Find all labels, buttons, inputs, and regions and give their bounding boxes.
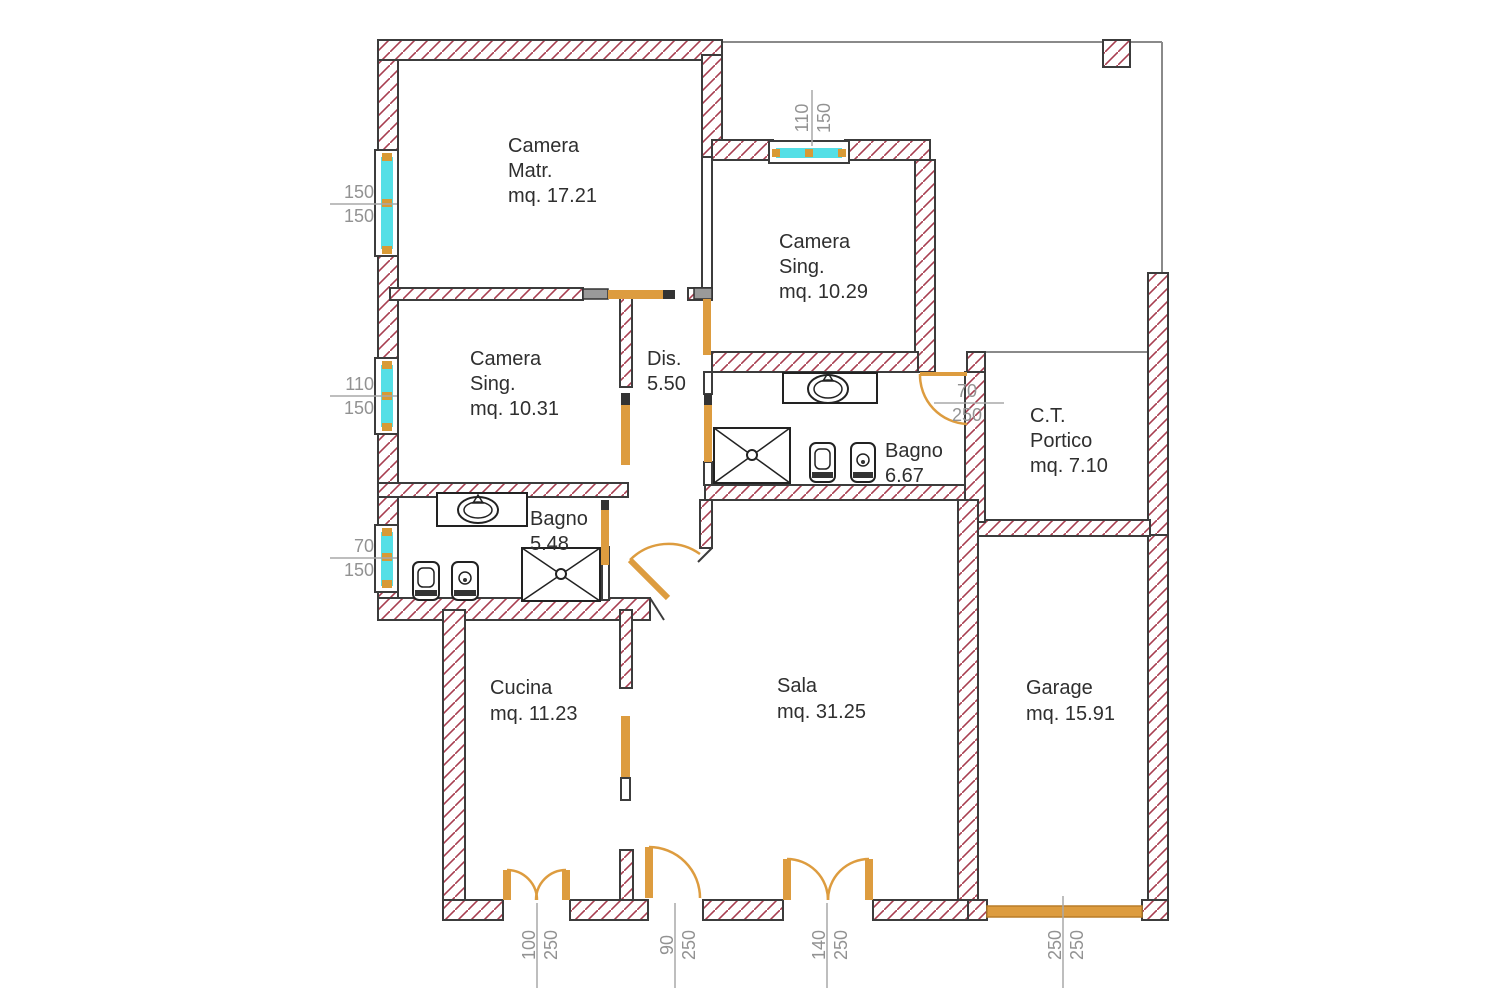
dim-door-sala-den: 250	[831, 930, 851, 960]
wall	[915, 160, 935, 372]
room-label-ct-portico: C.T.	[1030, 405, 1066, 427]
dim-porta-garage-num: 250	[1045, 930, 1065, 960]
wall	[873, 900, 968, 920]
room-label-sala: mq. 31.25	[777, 701, 866, 723]
wall	[620, 298, 632, 387]
dim-window-top-den: 150	[814, 103, 834, 133]
bidet-base	[454, 590, 476, 596]
room-label-dis: Dis.	[647, 348, 681, 370]
door-leaf-ingresso	[645, 847, 653, 898]
garage-door	[987, 906, 1142, 917]
room-label-camera-sing-nord: Sing.	[779, 256, 825, 278]
dim-door-sala-num: 140	[809, 930, 829, 960]
wall-chamfer	[650, 598, 664, 620]
wall	[378, 60, 398, 152]
window-accent	[382, 528, 392, 536]
window-accent	[382, 361, 392, 369]
room-label-bagno-piccolo: 5.48	[530, 533, 569, 555]
partition	[704, 462, 712, 485]
door-cap	[601, 500, 609, 510]
window-accent	[382, 246, 392, 254]
wall	[378, 598, 650, 620]
portico-outline	[722, 42, 1162, 352]
sink-icon	[783, 373, 877, 403]
wall	[712, 140, 773, 160]
partition	[702, 157, 712, 288]
dim-window-left-top-den: 150	[344, 206, 374, 226]
floor-plan: Camera Matr. mq. 17.21 Camera Sing. mq. …	[0, 0, 1500, 999]
room-label-bagno-grande: Bagno	[885, 440, 943, 462]
floor-plan-canvas: Camera Matr. mq. 17.21 Camera Sing. mq. …	[0, 0, 1500, 999]
door-jamb	[694, 288, 712, 299]
wall	[958, 500, 978, 902]
door-arc	[536, 870, 566, 900]
wall	[1148, 273, 1168, 535]
wall	[845, 140, 930, 160]
wall	[1148, 535, 1168, 920]
dim-door-cucina-num: 100	[519, 930, 539, 960]
shower-icon	[522, 548, 600, 601]
door-leaf-bagno-grande	[704, 405, 712, 462]
bidet-drain	[463, 578, 467, 582]
window-accent	[382, 199, 392, 207]
room-label-camera-sing-nord: Camera	[779, 231, 851, 253]
room-label-camera-matr: Camera	[508, 135, 580, 157]
door-leaf-shadow	[621, 778, 630, 800]
wall-chamfer	[698, 548, 712, 562]
door-leaf-camera-sing-ovest	[621, 405, 630, 465]
room-label-sala: Sala	[777, 675, 818, 697]
shower-drain	[747, 450, 757, 460]
window-accent	[382, 553, 392, 561]
shower-icon	[714, 428, 790, 483]
toilet-base	[415, 590, 437, 596]
dim-window-left-top-num: 150	[344, 182, 374, 202]
door-cap	[621, 393, 630, 405]
wall	[378, 430, 398, 530]
bidet-icon	[851, 443, 875, 482]
dim-window-left-mid-den: 150	[344, 398, 374, 418]
door-leaf	[503, 870, 511, 900]
shower-drain	[556, 569, 566, 579]
toilet-icon	[413, 562, 439, 600]
room-label-ct-portico: mq. 7.10	[1030, 455, 1108, 477]
toilet-icon	[810, 443, 835, 482]
window-accent	[838, 149, 846, 157]
wall	[978, 520, 1150, 536]
bidet-drain	[861, 460, 865, 464]
door-leaf	[783, 859, 791, 900]
dim-window-left-bottom-den: 150	[344, 560, 374, 580]
room-label-camera-matr: mq. 17.21	[508, 185, 597, 207]
wall	[570, 900, 648, 920]
door-cap	[663, 290, 675, 299]
dim-window-left-mid-num: 110	[345, 374, 374, 394]
door-arc-sala-angolo	[630, 544, 700, 560]
door-arc-ingresso	[649, 847, 700, 898]
dim-window-top-num: 110	[792, 104, 812, 133]
room-label-camera-sing-ovest: mq. 10.31	[470, 398, 559, 420]
room-label-dis: 5.50	[647, 373, 686, 395]
wall	[378, 40, 722, 60]
door-leaf	[562, 870, 570, 900]
door-arc	[787, 859, 828, 900]
room-label-camera-sing-ovest: Sing.	[470, 373, 516, 395]
door-arc	[507, 870, 537, 900]
window-accent	[382, 580, 392, 588]
toilet-base	[812, 472, 833, 478]
door-leaf	[865, 859, 873, 900]
wall	[703, 900, 783, 920]
door-leaf-camera-matr	[608, 290, 663, 299]
window-accent	[805, 149, 813, 157]
dim-porta-garage-den: 250	[1067, 930, 1087, 960]
room-labels: Camera Matr. mq. 17.21 Camera Sing. mq. …	[470, 135, 1115, 725]
door-leaf-cucina	[621, 716, 630, 778]
door-leaf-bagno-piccolo	[601, 510, 609, 565]
room-label-cucina: Cucina	[490, 677, 553, 699]
room-label-camera-sing-ovest: Camera	[470, 348, 542, 370]
partition	[704, 372, 712, 394]
wall	[390, 288, 583, 300]
wall	[443, 610, 465, 920]
door-leaf-camera-sing-nord	[703, 299, 711, 355]
wall	[620, 610, 632, 688]
room-label-garage: mq. 15.91	[1026, 703, 1115, 725]
portico-pillar	[1103, 40, 1130, 67]
wall	[705, 485, 965, 500]
room-label-camera-matr: Matr.	[508, 160, 552, 182]
dim-door-cucina-den: 250	[541, 930, 561, 960]
wall	[443, 900, 503, 920]
room-label-garage: Garage	[1026, 677, 1093, 699]
window-150x150	[375, 150, 398, 256]
wall	[700, 500, 712, 548]
door-leaf-sala-angolo	[630, 560, 668, 598]
room-label-camera-sing-nord: mq. 10.29	[779, 281, 868, 303]
window-accent	[772, 149, 780, 157]
room-label-bagno-grande: 6.67	[885, 465, 924, 487]
room-label-ct-portico: Portico	[1030, 430, 1092, 452]
window-110x150-top	[769, 141, 849, 163]
door-jamb	[583, 289, 608, 299]
wall	[1142, 900, 1168, 920]
bidet-base	[853, 472, 873, 478]
bidet-icon	[452, 562, 478, 600]
dim-window-left-bottom-num: 70	[354, 536, 374, 556]
door-arc	[828, 859, 869, 900]
room-label-cucina: mq. 11.23	[490, 703, 577, 725]
sink-icon	[437, 493, 527, 526]
wall	[378, 253, 398, 363]
dim-door-ingresso-den: 250	[679, 930, 699, 960]
window-accent	[382, 423, 392, 431]
dim-door-portico-den: 250	[952, 405, 982, 425]
wall	[968, 900, 987, 920]
dim-door-portico-num: 70	[957, 381, 977, 401]
window-accent	[382, 153, 392, 161]
dim-door-ingresso-num: 90	[657, 935, 677, 955]
wall	[967, 352, 985, 372]
wall	[712, 352, 918, 372]
room-label-bagno-piccolo: Bagno	[530, 508, 588, 530]
door-cap	[704, 394, 712, 405]
